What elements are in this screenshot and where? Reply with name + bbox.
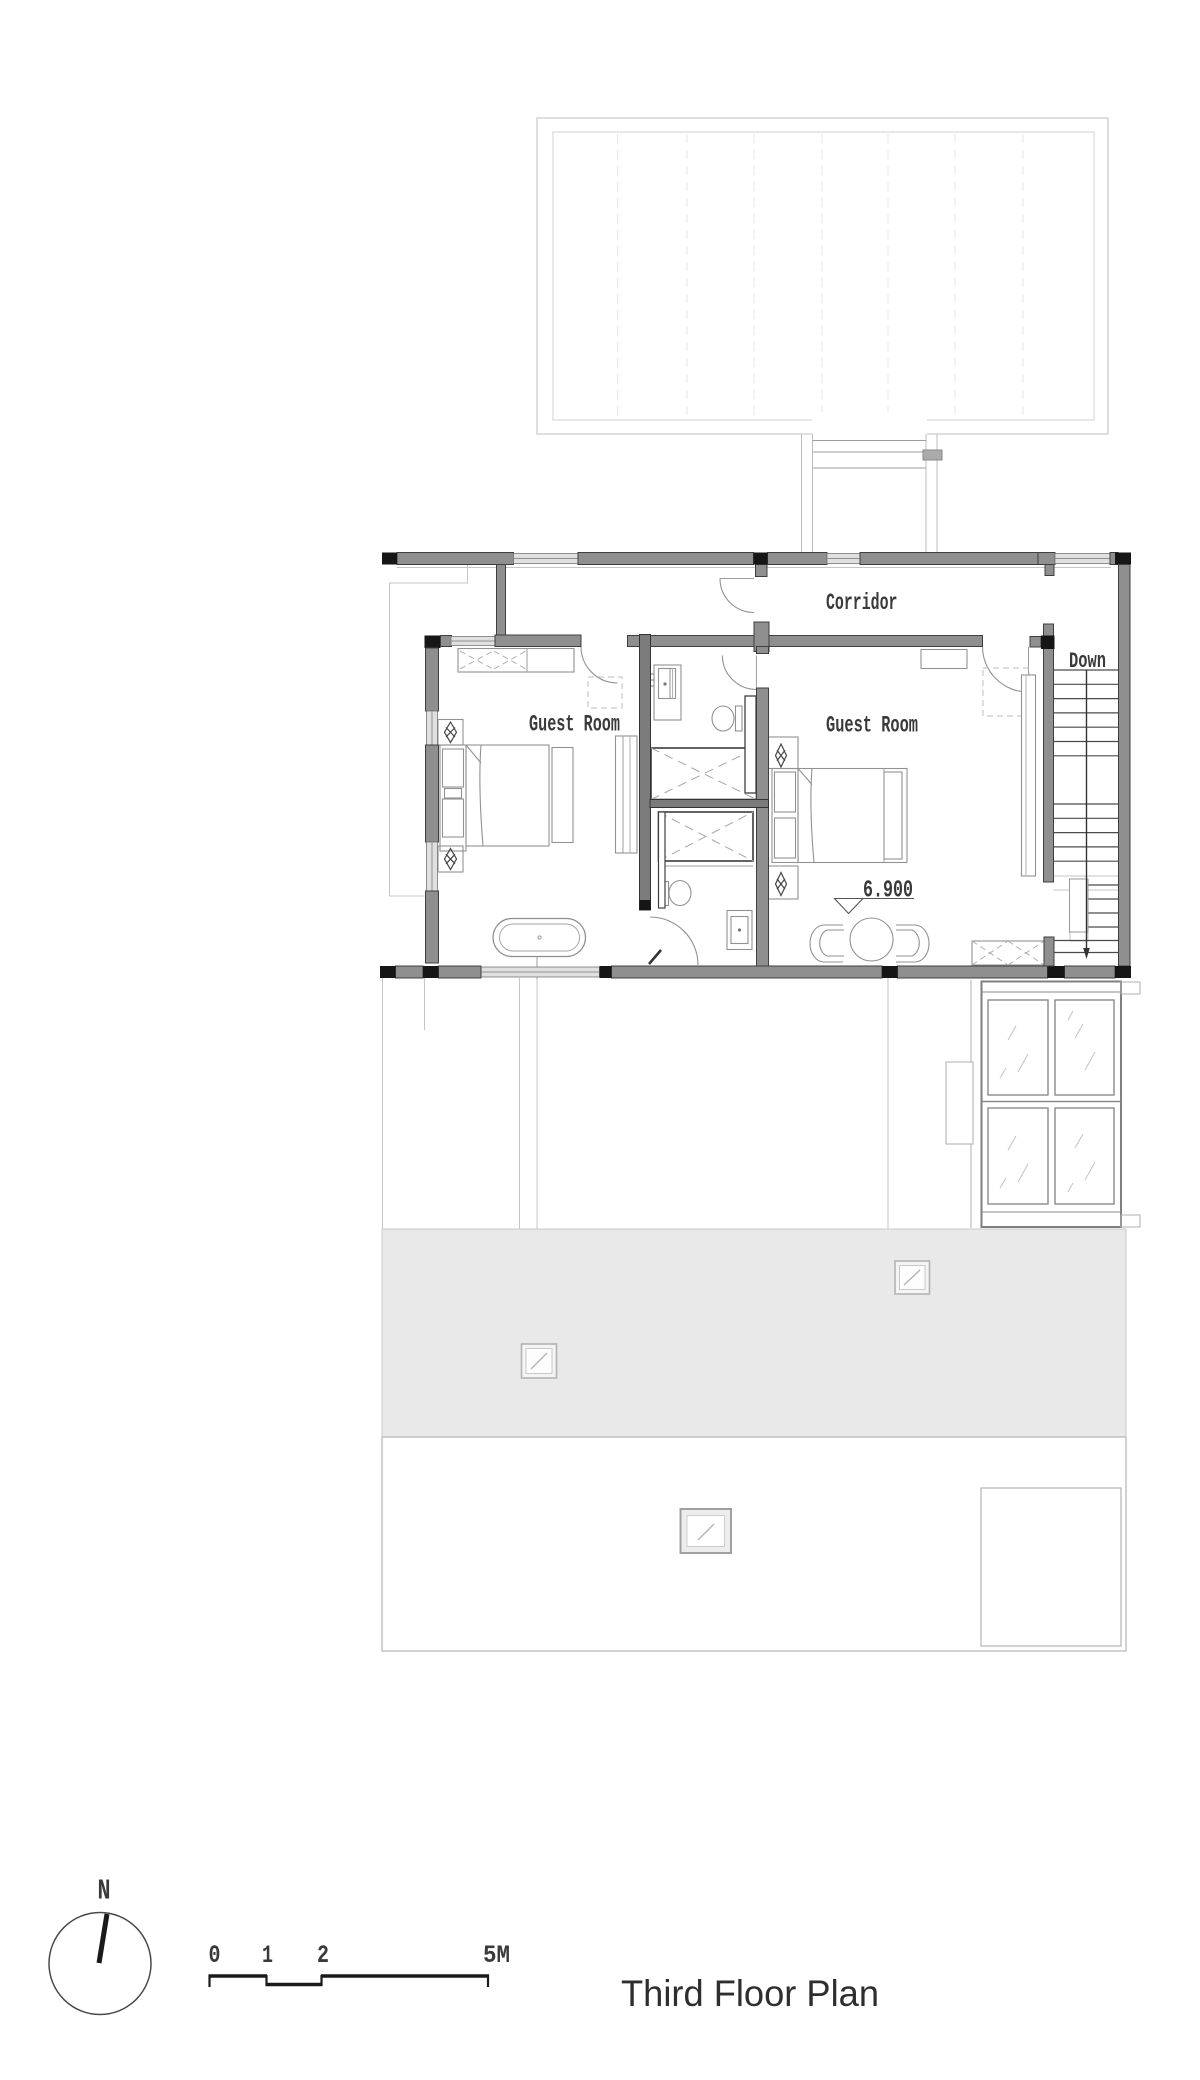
svg-text:Corridor: Corridor [826, 590, 898, 616]
svg-text:Guest Room: Guest Room [826, 713, 918, 739]
svg-text:Down: Down [1069, 649, 1106, 674]
svg-text:2: 2 [317, 1941, 329, 1970]
svg-text:5M: 5M [483, 1941, 510, 1970]
svg-text:6.900: 6.900 [863, 878, 913, 905]
svg-text:N: N [98, 1875, 111, 1908]
svg-text:Third Floor Plan: Third Floor Plan [621, 1973, 879, 2014]
svg-text:Guest Room: Guest Room [529, 712, 620, 738]
svg-text:0: 0 [209, 1941, 221, 1970]
svg-text:1: 1 [262, 1941, 273, 1970]
